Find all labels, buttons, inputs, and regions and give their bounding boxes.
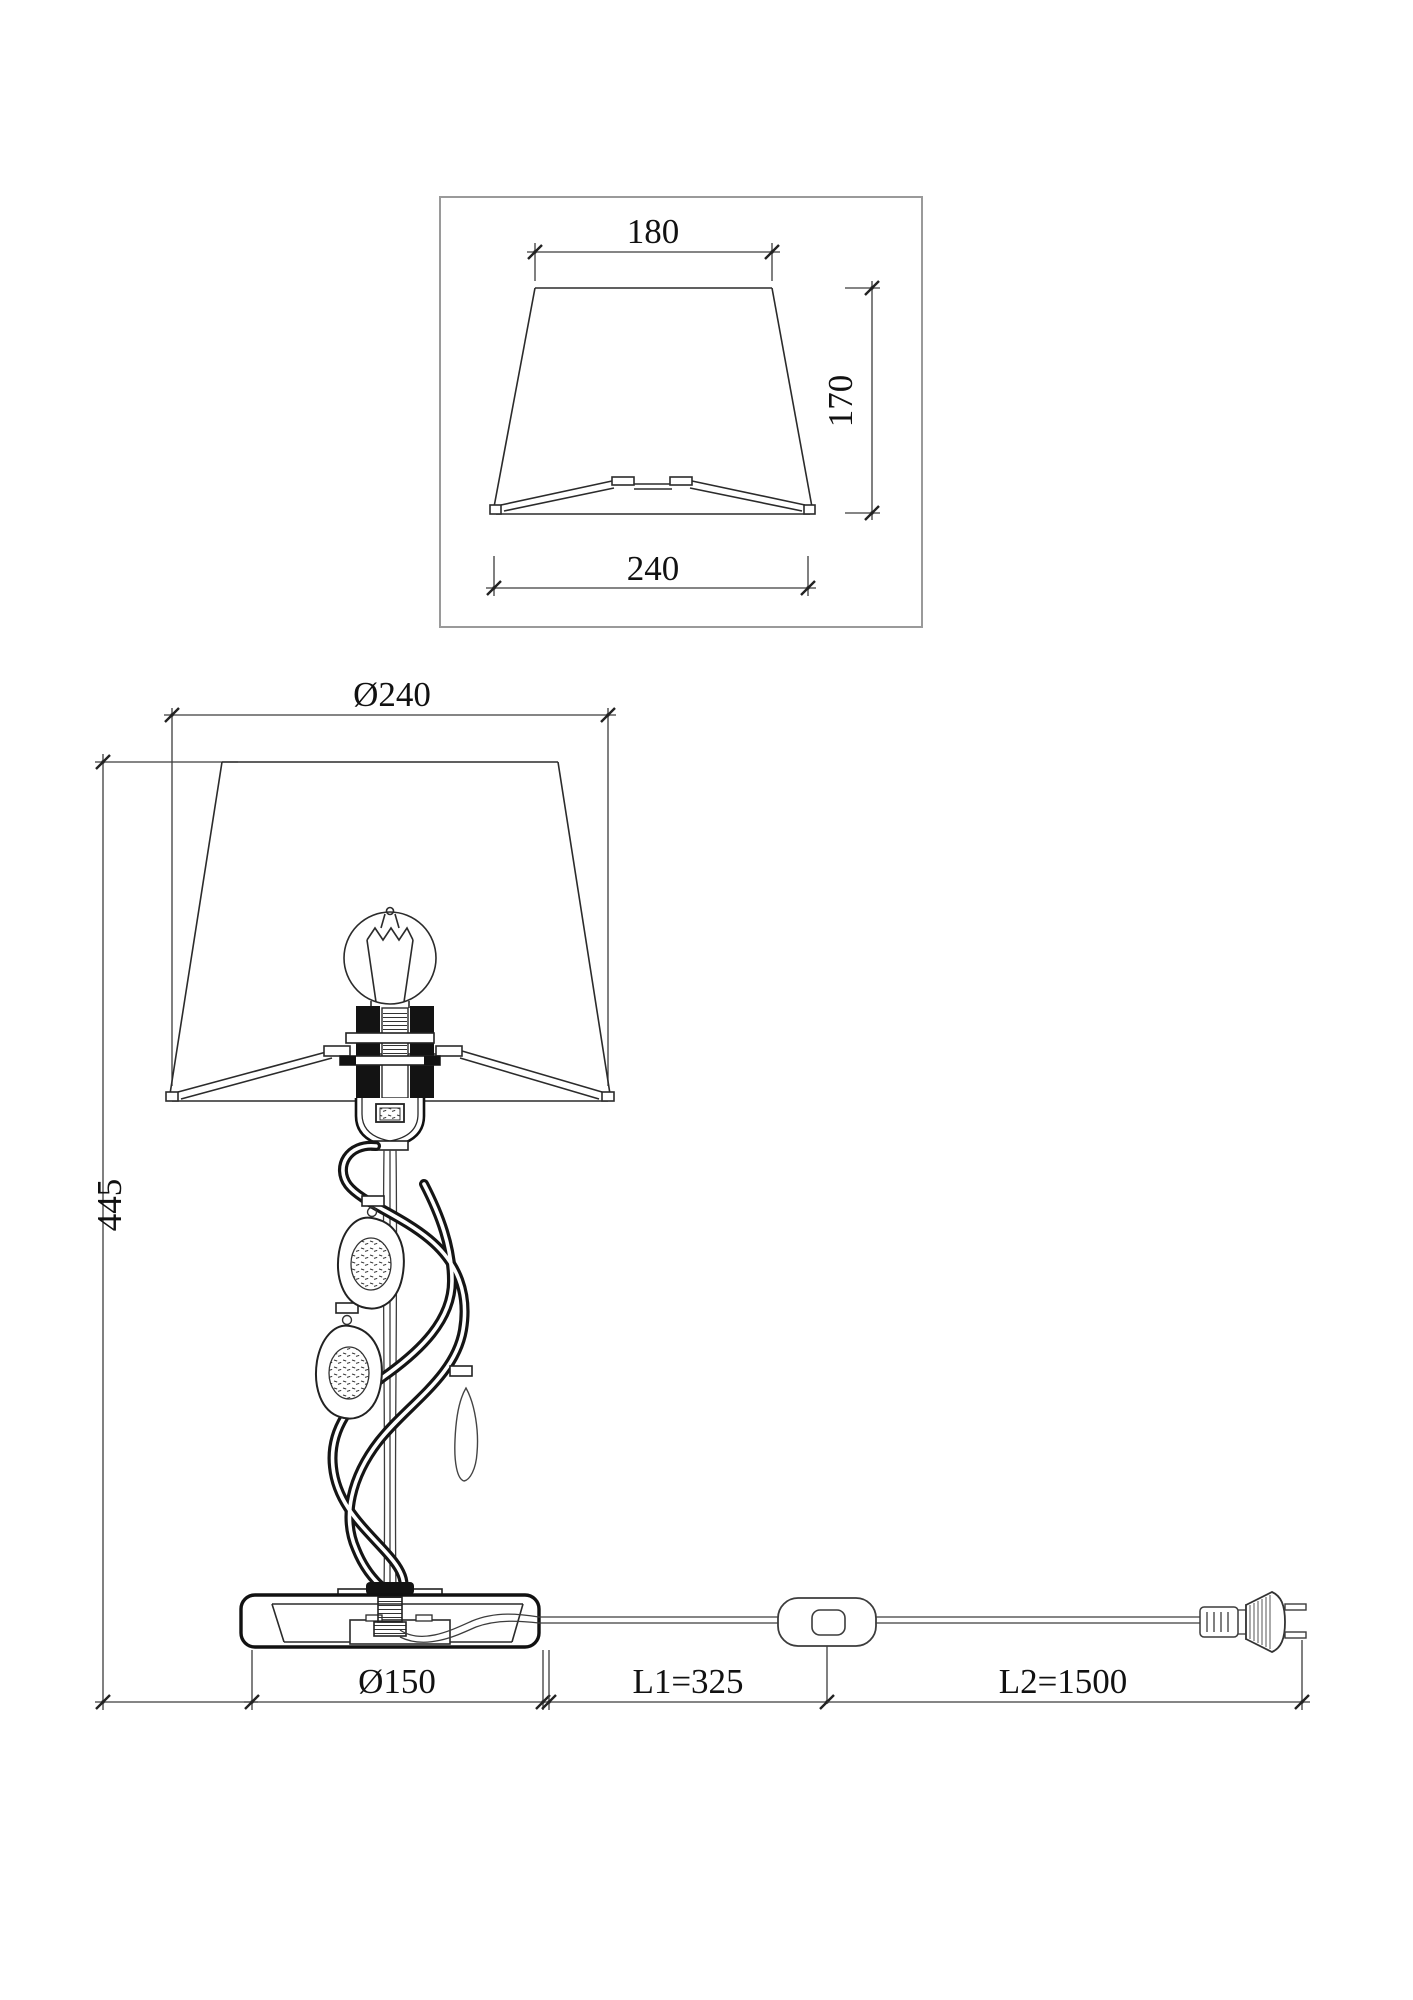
lamp-dimension-drawing: 180 170 240 [0,0,1413,2000]
plug-prong [1285,1632,1306,1638]
stem-clip [450,1366,472,1376]
stem-clip [362,1196,384,1206]
technical-drawing-page: 180 170 240 [0,0,1413,2000]
base-threaded-rod [378,1597,402,1622]
lamp-front-view: Ø240 445 [90,675,1310,1710]
dim-label-height: 170 [821,375,860,428]
crystal-drop-ornament [455,1388,478,1481]
dim-shade-top-width: 180 [527,212,780,281]
light-bulb [344,908,436,1009]
base-collar [366,1582,414,1595]
dim-total-height: 445 [90,754,258,1710]
socket-upper-plate [346,1033,434,1043]
power-plug [1200,1592,1306,1652]
inline-switch [778,1598,876,1702]
shade-detail-view: 180 170 240 [440,197,922,627]
shade-detail-outline [490,288,815,514]
switch-button [812,1610,845,1635]
base-nut [374,1622,406,1636]
dim-label-bottom-width: 240 [627,549,680,588]
dim-label-cord-l1: L1=325 [632,1662,743,1701]
dim-cord-l1: L1=325 [542,1650,834,1710]
lamp-socket [340,1006,440,1150]
dim-label-shade-diameter: Ø240 [353,675,431,714]
dim-label-cord-l2: L2=1500 [999,1662,1128,1701]
lamp-base [241,1582,539,1647]
dim-shade-height: 170 [821,281,880,520]
dim-base-diameter: Ø150 [244,1650,551,1710]
dim-cord-l2: L2=1500 [827,1640,1310,1710]
dim-shade-bottom-width: 240 [486,549,816,596]
dim-label-base-diameter: Ø150 [358,1662,436,1701]
leaf-ornaments [316,1208,404,1419]
dim-label-total-height: 445 [90,1179,129,1232]
dim-label-top-width: 180 [627,212,680,251]
plug-prong [1285,1604,1306,1610]
